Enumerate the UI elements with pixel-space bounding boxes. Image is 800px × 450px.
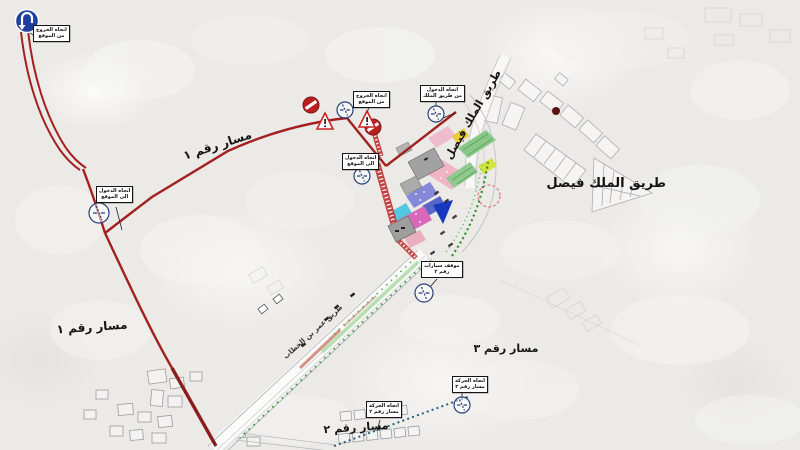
king-faisal-road-label: طريق الملك فيصل (558, 176, 666, 191)
callout-box: اتجاه الخروج من الموقع (33, 25, 70, 42)
callout-box: اتجاه الدخول الى الموقع (96, 186, 133, 203)
no-entry-icon (303, 97, 319, 113)
superblock-grid (481, 73, 652, 212)
callout-box: موقف سيارات رقم ٢ (421, 261, 463, 278)
site-plan (374, 126, 497, 258)
callout-box: اتجاه الدخول الى الموقع (342, 153, 379, 170)
callout-box: اتجاه الحركة مسار رقم ٢ (366, 401, 402, 418)
callout-box: اتجاه الخروج من الموقع (353, 91, 390, 108)
route3-label: مسار رقم ٣ (466, 342, 546, 355)
roundabout-dashed-circle (478, 185, 500, 207)
map-canvas: مسار رقم ١ مسار رقم ١ مسار رقم ٢ مسار رق… (0, 0, 800, 450)
map-layers (0, 0, 800, 450)
location-dot-icon (552, 107, 560, 115)
callout-box: اتجاه الحركة مسار رقم ٣ (452, 376, 488, 393)
callout-box: اتجاه الدخول من طريق الملك (420, 85, 465, 102)
